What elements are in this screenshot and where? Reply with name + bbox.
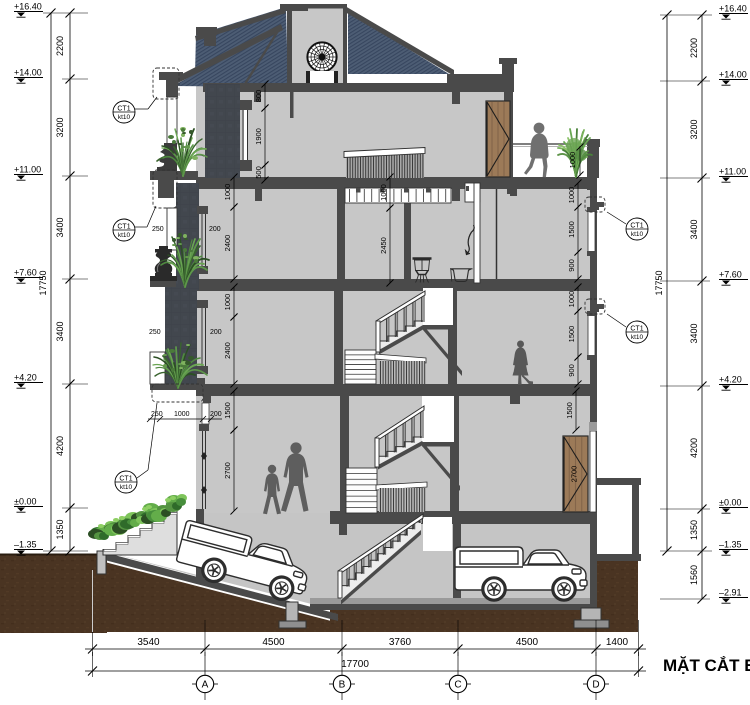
svg-text:4200: 4200 (689, 438, 699, 458)
svg-text:CT1: CT1 (117, 106, 130, 113)
svg-text:1500: 1500 (223, 402, 232, 419)
svg-text:200: 200 (210, 411, 222, 418)
svg-text:kt10: kt10 (118, 114, 131, 121)
svg-text:kt10: kt10 (631, 334, 644, 341)
svg-text:A: A (202, 680, 209, 691)
svg-text:2400: 2400 (223, 235, 232, 252)
svg-text:B: B (339, 680, 346, 691)
svg-text:1000: 1000 (174, 411, 190, 418)
svg-text:2450: 2450 (379, 237, 388, 254)
svg-text:1000: 1000 (567, 291, 576, 308)
svg-text:2700: 2700 (223, 462, 232, 479)
svg-text:500: 500 (254, 166, 263, 179)
svg-text:900: 900 (567, 364, 576, 377)
svg-text:2200: 2200 (55, 36, 65, 56)
svg-text:2400: 2400 (223, 342, 232, 359)
svg-text:1500: 1500 (567, 326, 576, 343)
svg-text:+16.40: +16.40 (719, 4, 747, 14)
svg-text:+14.00: +14.00 (719, 70, 747, 80)
svg-text:+4.20: +4.20 (14, 373, 37, 383)
svg-text:+7.60: +7.60 (719, 270, 742, 280)
svg-text:+4.20: +4.20 (719, 375, 742, 385)
svg-text:+7.60: +7.60 (14, 268, 37, 278)
svg-text:CT1: CT1 (119, 476, 132, 483)
svg-text:17750: 17750 (654, 270, 664, 295)
svg-text:200: 200 (210, 329, 222, 336)
svg-text:CT1: CT1 (117, 224, 130, 231)
svg-text:3540: 3540 (137, 637, 160, 648)
svg-text:3760: 3760 (389, 637, 412, 648)
svg-text:1000: 1000 (567, 187, 576, 204)
svg-text:17750: 17750 (38, 270, 48, 295)
svg-text:CT1: CT1 (630, 223, 643, 230)
svg-text:1350: 1350 (55, 519, 65, 539)
svg-text:4500: 4500 (516, 637, 539, 648)
svg-text:4200: 4200 (55, 436, 65, 456)
svg-text:C: C (454, 680, 461, 691)
svg-text:3400: 3400 (689, 323, 699, 343)
svg-text:1500: 1500 (567, 221, 576, 238)
svg-text:MẶT CẮT E-E: MẶT CẮT E-E (663, 656, 750, 675)
svg-text:–1.35: –1.35 (14, 540, 37, 550)
svg-text:2200: 2200 (689, 38, 699, 58)
svg-text:3400: 3400 (55, 321, 65, 341)
svg-text:–2.91: –2.91 (719, 588, 742, 598)
svg-text:kt10: kt10 (631, 231, 644, 238)
svg-text:1000: 1000 (568, 152, 577, 169)
svg-text:–1.35: –1.35 (719, 540, 742, 550)
svg-text:+11.00: +11.00 (14, 165, 41, 175)
svg-text:1900: 1900 (254, 128, 263, 145)
svg-text:250: 250 (149, 329, 161, 336)
svg-text:2700: 2700 (570, 466, 579, 483)
svg-text:4500: 4500 (262, 637, 285, 648)
svg-text:±0.00: ±0.00 (14, 497, 36, 507)
svg-text:D: D (592, 680, 599, 691)
svg-text:17700: 17700 (341, 659, 369, 670)
svg-text:800: 800 (254, 90, 263, 103)
svg-text:250: 250 (152, 226, 164, 233)
svg-text:3200: 3200 (55, 117, 65, 137)
svg-text:kt10: kt10 (120, 484, 133, 491)
svg-text:1500: 1500 (565, 402, 574, 419)
svg-text:250: 250 (151, 411, 163, 418)
svg-text:+16.40: +16.40 (14, 2, 42, 12)
svg-text:1560: 1560 (689, 565, 699, 585)
svg-text:900: 900 (567, 259, 576, 272)
svg-text:1000: 1000 (223, 294, 232, 311)
svg-text:kt10: kt10 (118, 232, 131, 239)
svg-text:3400: 3400 (55, 217, 65, 237)
svg-text:3400: 3400 (689, 219, 699, 239)
svg-text:1400: 1400 (606, 637, 629, 648)
svg-text:±0.00: ±0.00 (719, 498, 741, 508)
svg-text:CT1: CT1 (630, 326, 643, 333)
svg-text:3200: 3200 (689, 119, 699, 139)
svg-text:1000: 1000 (379, 184, 388, 201)
svg-text:+11.00: +11.00 (719, 167, 746, 177)
svg-text:1000: 1000 (223, 184, 232, 201)
svg-text:200: 200 (209, 226, 221, 233)
svg-text:+14.00: +14.00 (14, 68, 42, 78)
svg-text:1350: 1350 (689, 520, 699, 540)
